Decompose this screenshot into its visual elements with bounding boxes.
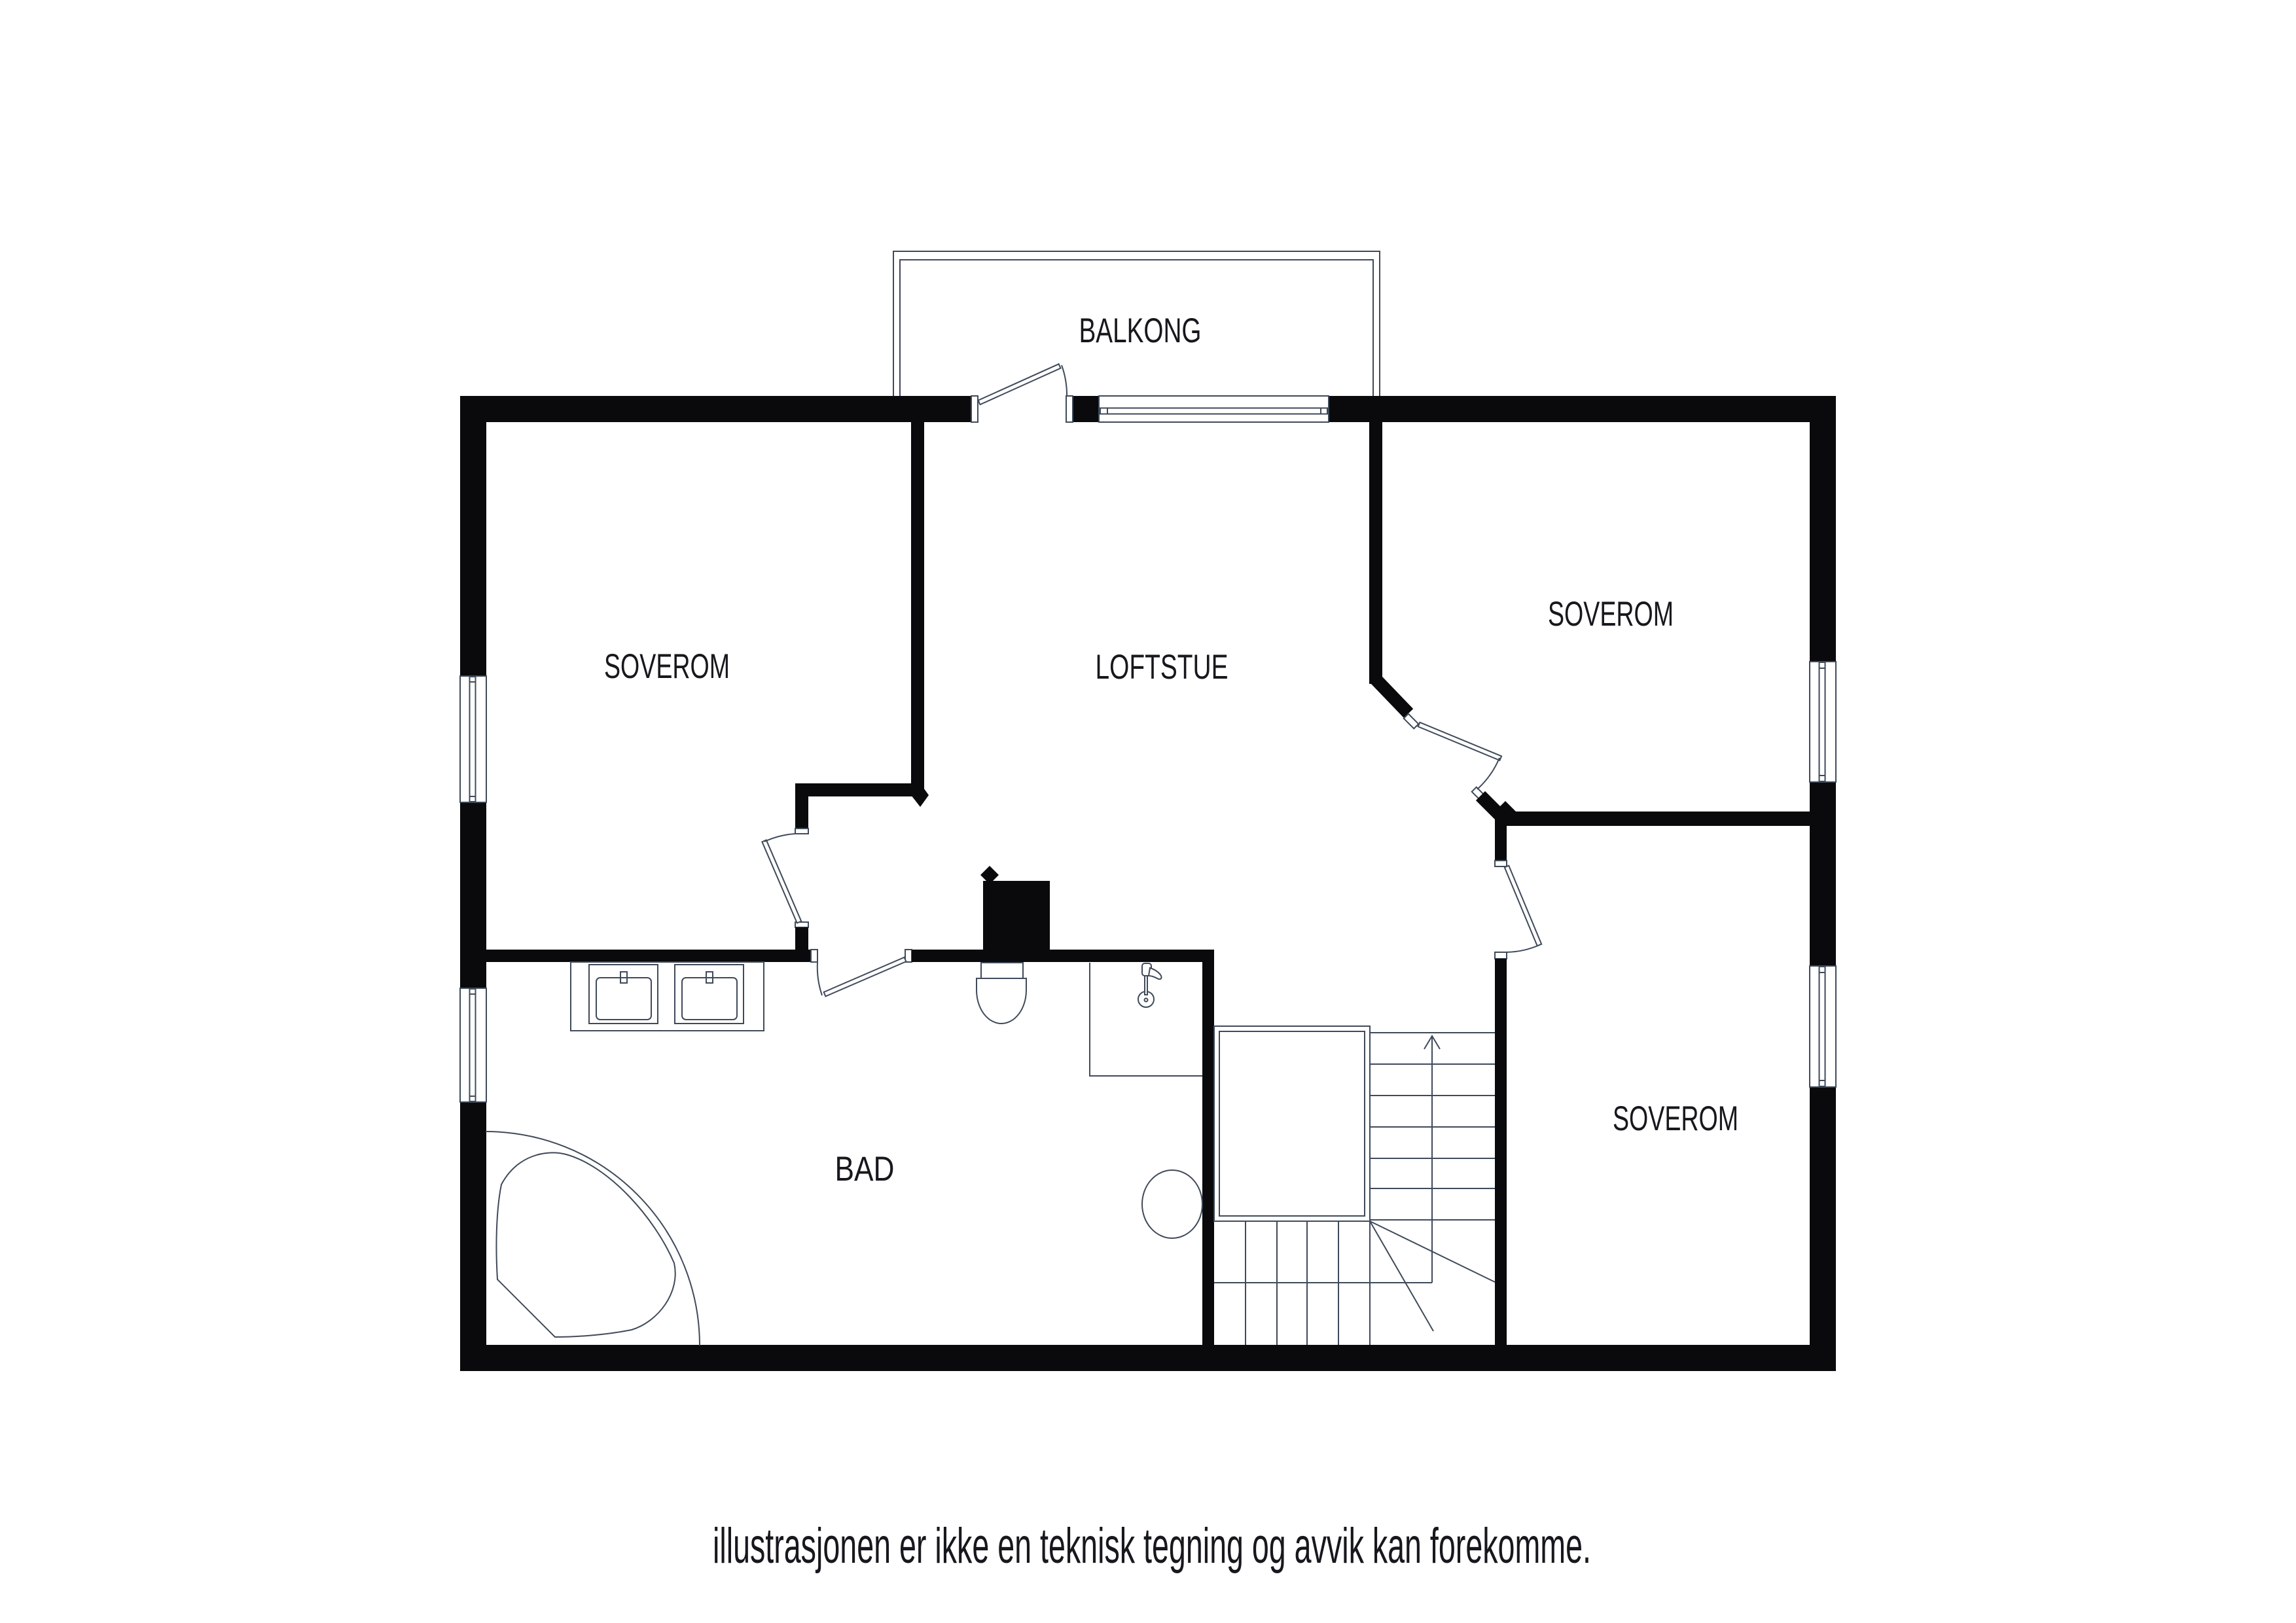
svg-text:BALKONG: BALKONG: [1079, 312, 1202, 350]
svg-text:LOFTSTUE: LOFTSTUE: [1096, 648, 1229, 687]
svg-text:SOVEROM: SOVEROM: [1548, 595, 1674, 633]
svg-text:SOVEROM: SOVEROM: [1613, 1099, 1738, 1138]
svg-text:BAD: BAD: [835, 1150, 895, 1188]
svg-text:SOVEROM: SOVEROM: [604, 647, 730, 686]
svg-text:illustrasjonen er ikke en tekn: illustrasjonen er ikke en teknisk tegnin…: [713, 1518, 1591, 1574]
